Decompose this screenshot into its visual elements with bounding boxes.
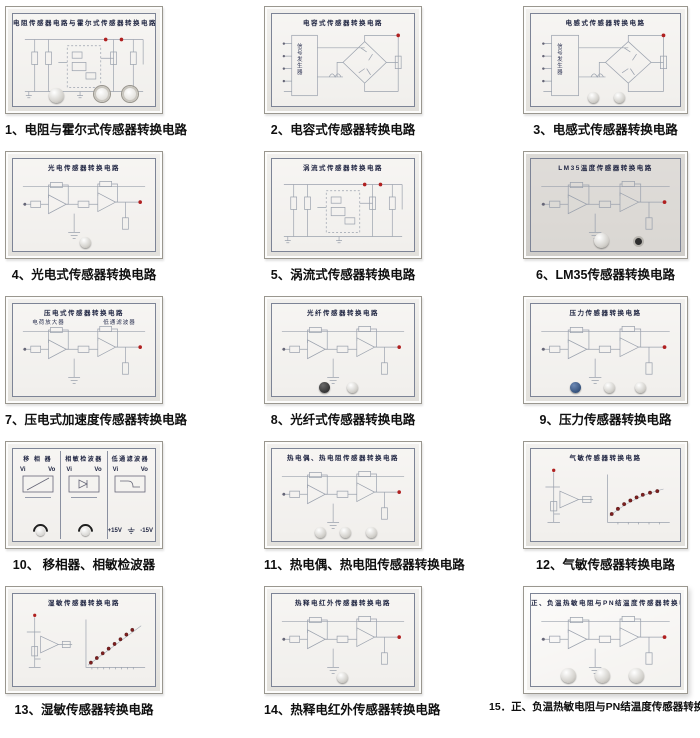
- module-caption: 1、电阻与霍尔式传感器转换电路: [5, 119, 163, 138]
- module-6: LM35温度传感器转换电路 6、LM35传感器转换电路: [523, 151, 688, 296]
- module-caption: 13、湿敏传感器转换电路: [5, 699, 163, 718]
- module-caption: 2、电容式传感器转换电路: [264, 119, 422, 138]
- panel-title: 气敏传感器转换电路: [531, 452, 680, 462]
- panel-6: LM35温度传感器转换电路: [523, 151, 688, 259]
- panel-face: 电阻传感器电路与霍尔式传感器转换电路: [12, 13, 156, 107]
- panel-1: 电阻传感器电路与霍尔式传感器转换电路: [5, 6, 163, 114]
- panel-title: 电阻传感器电路与霍尔式传感器转换电路: [13, 17, 155, 27]
- panel-5: 涡流式传感器转换电路: [264, 151, 422, 259]
- module-caption: 11、热电偶、热电阻传感器转换电路: [264, 554, 422, 573]
- panel-11: 热电偶、热电阻传感器转换电路: [264, 441, 422, 549]
- section-title: 移 相 器: [15, 454, 60, 463]
- knob: [315, 527, 326, 538]
- panel-title: 热释电红外传感器转换电路: [272, 597, 414, 607]
- panel-title: 压电式传感器转换电路: [13, 307, 155, 317]
- module-13: 湿敏传感器转换电路 13、湿敏传感器转换电路: [5, 586, 163, 731]
- panel-8: 光纤传感器转换电路: [264, 296, 422, 404]
- panel-title: 电容式传感器转换电路: [272, 17, 414, 27]
- circuit-diagram: [274, 172, 412, 249]
- panel-title: 湿敏传感器转换电路: [13, 597, 155, 607]
- circuit-diagram: [533, 462, 678, 539]
- panel-face: 湿敏传感器转换电路: [12, 593, 156, 687]
- module-5: 涡流式传感器转换电路 5、涡流式传感器转换电路: [264, 151, 422, 296]
- knob: [594, 233, 609, 248]
- detector-symbol: [68, 475, 100, 493]
- stage-labels: 电荷放大器 低通滤波器: [13, 318, 155, 326]
- module-4: 光电传感器转换电路 4、光电式传感器转换电路: [5, 151, 163, 296]
- module-caption: 3、电感式传感器转换电路: [523, 119, 688, 138]
- lowpass-label: 低通滤波器: [103, 318, 136, 326]
- panel-face: 光纤传感器转换电路: [271, 303, 415, 397]
- panel-face: 电容式传感器转换电路 信号发生器: [271, 13, 415, 107]
- meter-socket: [94, 86, 110, 102]
- vi-label: Vi: [66, 467, 72, 473]
- knob: [561, 668, 576, 683]
- vi-label: Vi: [113, 467, 119, 473]
- panel-10: 移 相 器 Vi Vo 相敏检波器 Vi Vo 低通滤波器 Vi Vo +15V: [5, 441, 163, 549]
- module-1: 电阻传感器电路与霍尔式传感器转换电路 1、电阻与霍尔式传感器转换电路: [5, 6, 163, 151]
- knob: [33, 524, 48, 539]
- knob: [78, 524, 93, 539]
- module-14: 热释电红外传感器转换电路 14、热释电红外传感器转换电路: [264, 586, 422, 731]
- ground-link: [25, 497, 51, 503]
- panel-face: 压力传感器转换电路: [530, 303, 681, 397]
- module-caption: 10、 移相器、相敏检波器: [5, 554, 163, 573]
- module-9: 压力传感器转换电路 9、压力传感器转换电路: [523, 296, 688, 441]
- module-11: 热电偶、热电阻传感器转换电路 11、热电偶、热电阻传感器转换电路: [264, 441, 422, 586]
- panel-face: LM35温度传感器转换电路: [530, 158, 681, 252]
- power-labels: +15V -15V: [108, 527, 153, 534]
- panel-7: 压电式传感器转换电路 电荷放大器 低通滤波器: [5, 296, 163, 404]
- panel-title: 光电传感器转换电路: [13, 162, 155, 172]
- panel-face: 压电式传感器转换电路 电荷放大器 低通滤波器: [12, 303, 156, 397]
- panel-face: 移 相 器 Vi Vo 相敏检波器 Vi Vo 低通滤波器 Vi Vo +15V: [12, 448, 156, 542]
- charge-amp-label: 电荷放大器: [32, 318, 65, 326]
- vo-label: Vo: [48, 467, 55, 473]
- lowpass-symbol: [114, 475, 146, 493]
- section-title: 相敏检波器: [61, 454, 106, 463]
- module-caption: 15．正、负温热敏电阻与PN结温度传感器转换电路: [489, 699, 688, 714]
- panel-title: 电感式传感器转换电路: [531, 17, 680, 27]
- section-title: 低通滤波器: [108, 454, 153, 463]
- knob: [570, 382, 581, 393]
- knob: [604, 382, 615, 393]
- module-caption: 8、光纤式传感器转换电路: [264, 409, 422, 428]
- module-caption: 4、光电式传感器转换电路: [5, 264, 163, 283]
- module-caption: 14、热释电红外传感器转换电路: [264, 699, 422, 718]
- panel-face: 气敏传感器转换电路: [530, 448, 681, 542]
- module-catalog-grid: 电阻传感器电路与霍尔式传感器转换电路 1、电阻与霍尔式传感器转换电路 电容式传感…: [0, 0, 700, 731]
- panel-2: 电容式传感器转换电路 信号发生器: [264, 6, 422, 114]
- panel-face: 涡流式传感器转换电路: [271, 158, 415, 252]
- panel-4: 光电传感器转换电路: [5, 151, 163, 259]
- circuit-diagram: [15, 317, 153, 394]
- ground-icon: [127, 527, 135, 534]
- knob: [49, 88, 64, 103]
- panel-face: 热释电红外传感器转换电路: [271, 593, 415, 687]
- vo-label: Vo: [94, 467, 101, 473]
- panel-title: LM35温度传感器转换电路: [531, 162, 680, 172]
- module-8: 光纤传感器转换电路 8、光纤式传感器转换电路: [264, 296, 422, 441]
- vi-label: Vi: [20, 467, 26, 473]
- module-10: 移 相 器 Vi Vo 相敏检波器 Vi Vo 低通滤波器 Vi Vo +15V: [5, 441, 163, 586]
- circuit-diagram: [274, 317, 412, 394]
- module-2: 电容式传感器转换电路 信号发生器 2、电容式传感器转换电路: [264, 6, 422, 151]
- panel-title: 热电偶、热电阻传感器转换电路: [272, 452, 414, 462]
- module-caption: 6、LM35传感器转换电路: [523, 264, 688, 283]
- panel-title: 光纤传感器转换电路: [272, 307, 414, 317]
- circuit-diagram: [15, 607, 153, 684]
- ground-link: [71, 497, 97, 503]
- panel-title: 压力传感器转换电路: [531, 307, 680, 317]
- knob: [319, 382, 330, 393]
- knob: [595, 668, 610, 683]
- phase-shifter-symbol: [22, 475, 54, 493]
- module-caption: 7、压电式加速度传感器转换电路: [5, 409, 163, 428]
- signal-generator-label: 信号发生器: [295, 43, 303, 76]
- signal-generator-label: 信号发生器: [555, 43, 563, 76]
- panel-9: 压力传感器转换电路: [523, 296, 688, 404]
- pos-supply-label: +15V: [108, 528, 122, 534]
- panel-face: 电感式传感器转换电路 信号发生器: [530, 13, 681, 107]
- panel-3: 电感式传感器转换电路 信号发生器: [523, 6, 688, 114]
- module-7: 压电式传感器转换电路 电荷放大器 低通滤波器 7、压电式加速度传感器转换电路: [5, 296, 163, 441]
- module-15: 正、负温热敏电阻与PN结温度传感器转换电路 15．正、负温热敏电阻与PN结温度传…: [523, 586, 688, 731]
- knob: [588, 92, 599, 103]
- module-caption: 9、压力传感器转换电路: [523, 409, 688, 428]
- knob: [366, 527, 377, 538]
- panel-face: 热电偶、热电阻传感器转换电路: [271, 448, 415, 542]
- section-lowpass: 低通滤波器 Vi Vo +15V -15V: [108, 451, 153, 539]
- panel-face: 光电传感器转换电路: [12, 158, 156, 252]
- panel-13: 湿敏传感器转换电路: [5, 586, 163, 694]
- neg-supply-label: -15V: [140, 528, 153, 534]
- panel-face: 正、负温热敏电阻与PN结温度传感器转换电路: [530, 593, 681, 687]
- module-3: 电感式传感器转换电路 信号发生器 3、电感式传感器转换电路: [523, 6, 688, 151]
- panel-14: 热释电红外传感器转换电路: [264, 586, 422, 694]
- panel-12: 气敏传感器转换电路: [523, 441, 688, 549]
- module-12: 气敏传感器转换电路 12、气敏传感器转换电路: [523, 441, 688, 586]
- panel-title: 涡流式传感器转换电路: [272, 162, 414, 172]
- module-caption: 5、涡流式传感器转换电路: [264, 264, 422, 283]
- vo-label: Vo: [141, 467, 148, 473]
- module-caption: 12、气敏传感器转换电路: [523, 554, 688, 573]
- panel-15: 正、负温热敏电阻与PN结温度传感器转换电路: [523, 586, 688, 694]
- knob: [80, 237, 91, 248]
- panel-title: 正、负温热敏电阻与PN结温度传感器转换电路: [531, 597, 680, 607]
